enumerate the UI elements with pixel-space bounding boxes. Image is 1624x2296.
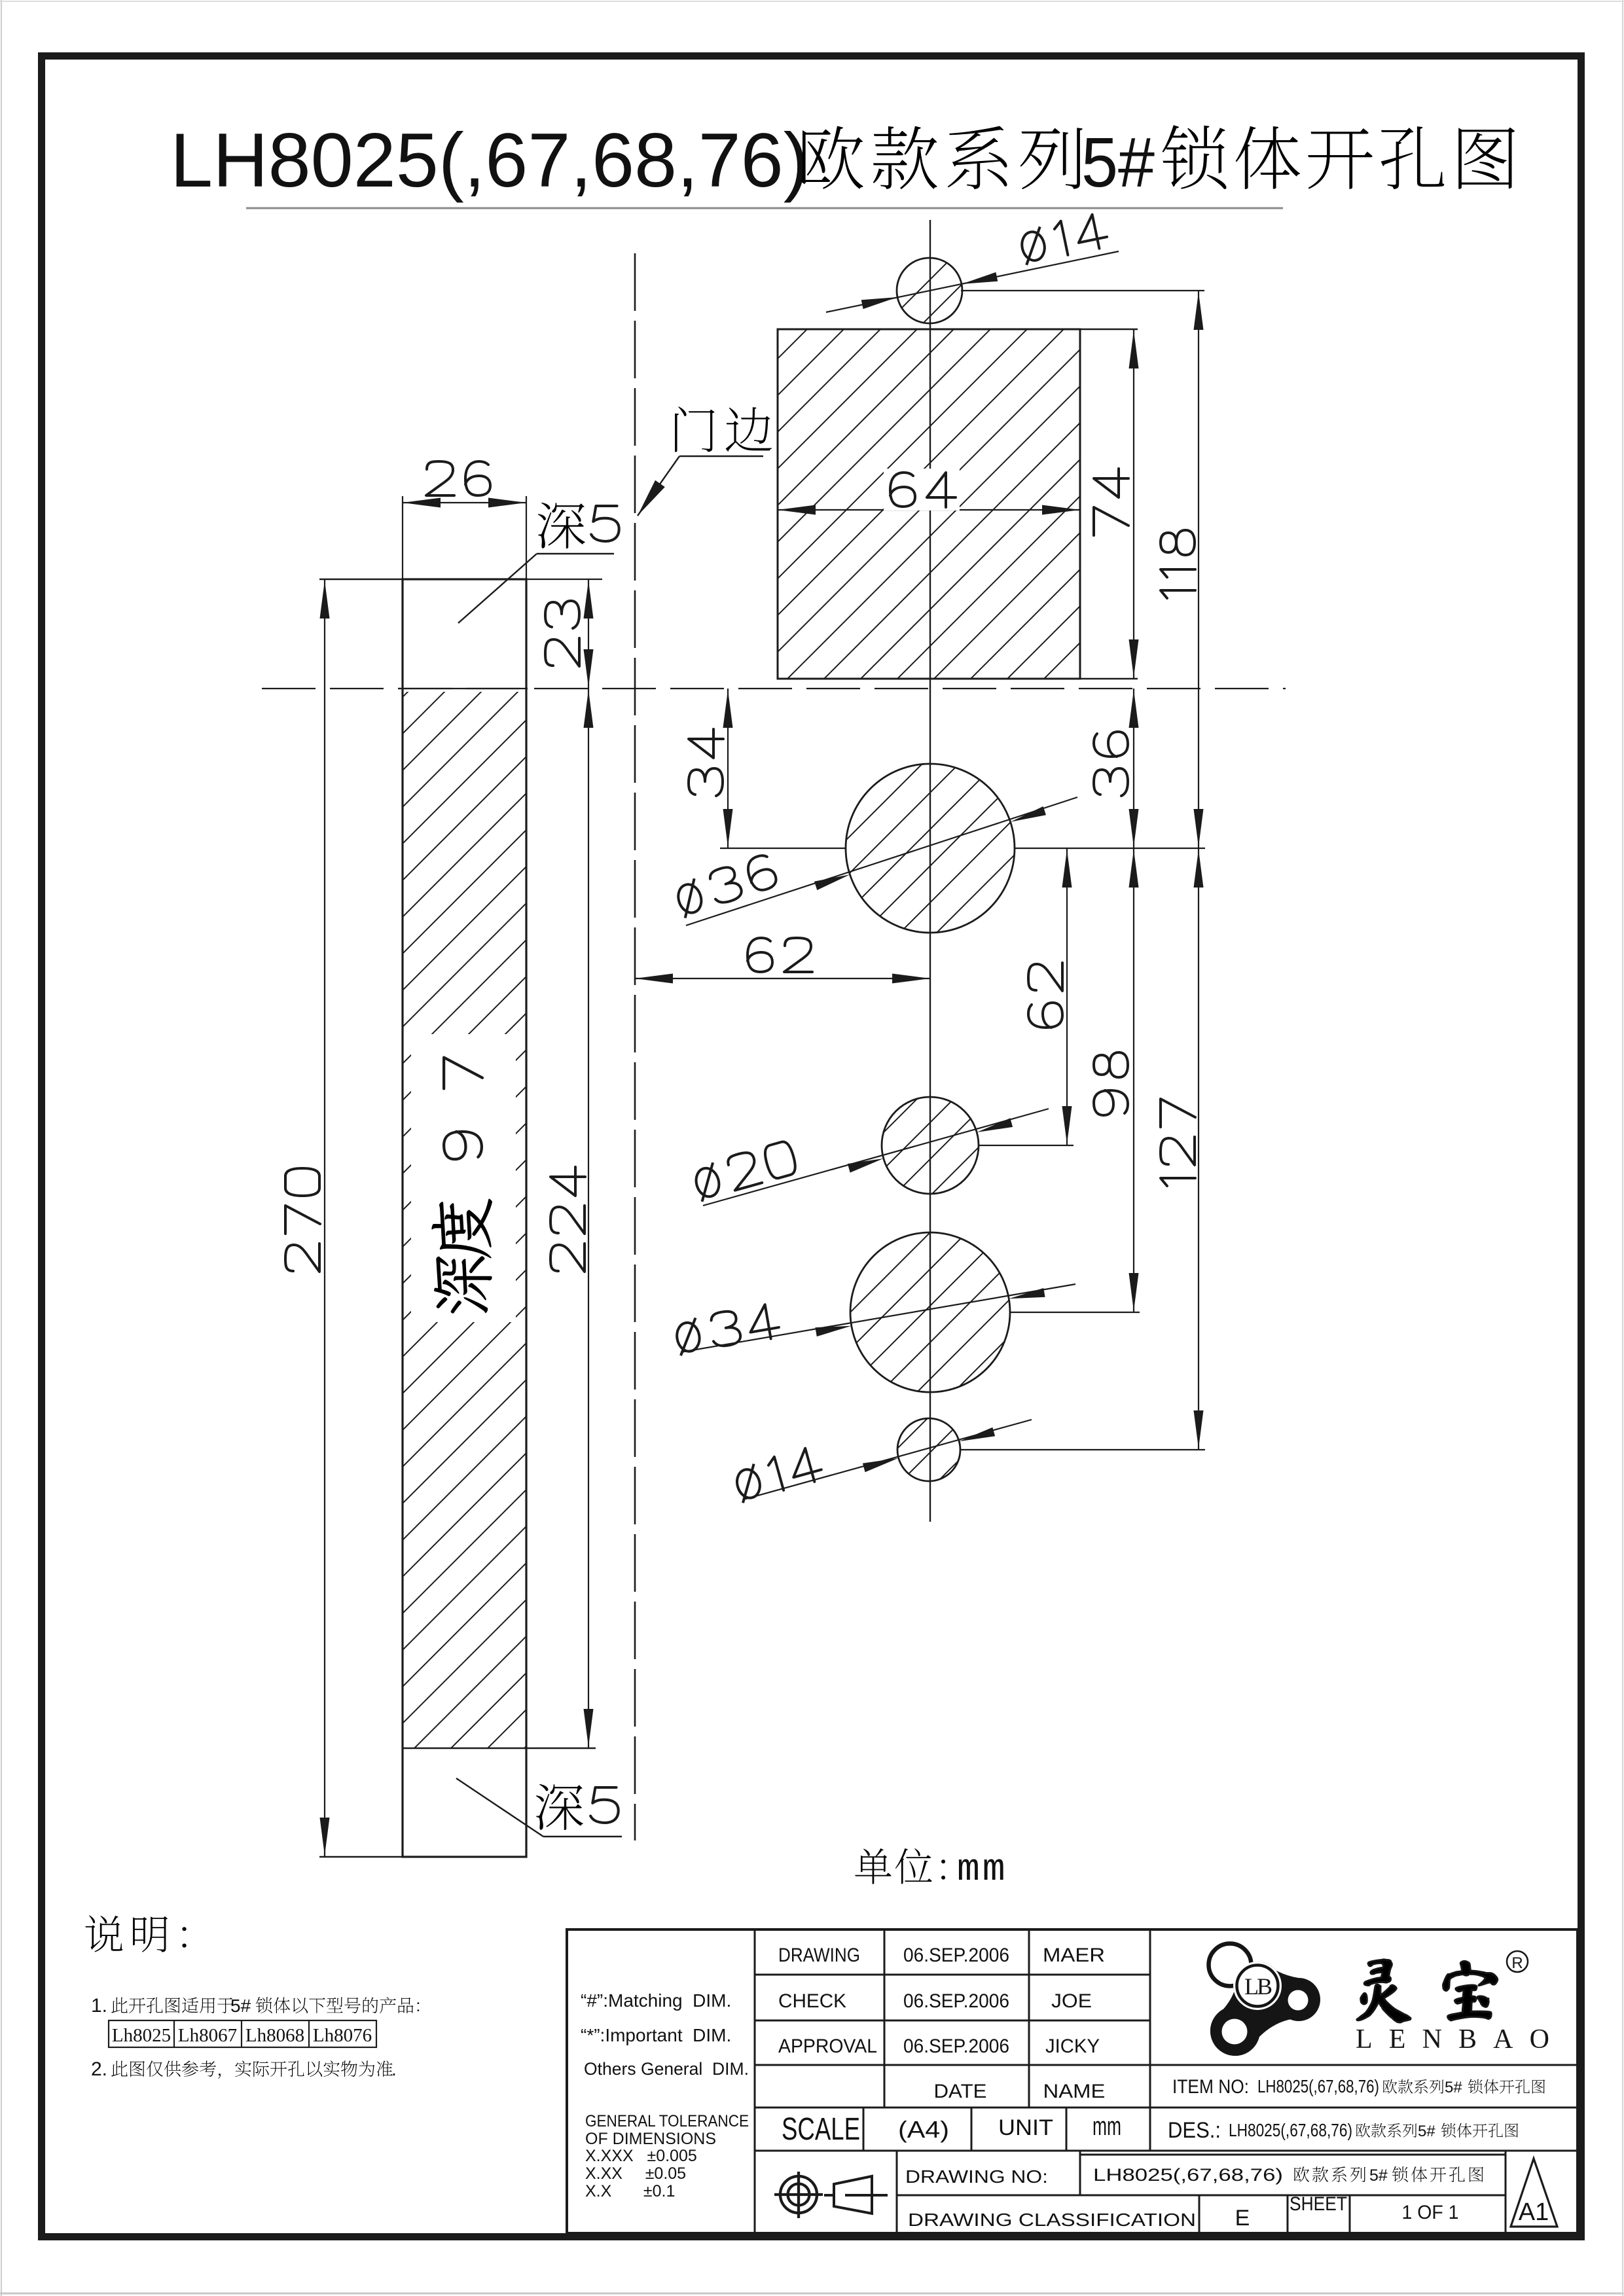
svg-text:SCALE: SCALE <box>782 2112 860 2147</box>
svg-text:Lh8076: Lh8076 <box>313 2025 372 2046</box>
svg-text:5#: 5# <box>1081 122 1155 202</box>
svg-text:A1: A1 <box>1519 2198 1549 2226</box>
svg-text:5#: 5# <box>1445 2079 1462 2096</box>
svg-text:1 OF 1: 1 OF 1 <box>1402 2202 1459 2223</box>
svg-text:OF DIMENSIONS: OF DIMENSIONS <box>585 2130 716 2148</box>
svg-text:DES.:: DES.: <box>1168 2118 1221 2143</box>
svg-text:mm: mm <box>1092 2112 1121 2141</box>
svg-text:Others General DIM.: Others General DIM. <box>584 2059 749 2079</box>
svg-text:DATE: DATE <box>934 2081 987 2102</box>
svg-text:ITEM NO:: ITEM NO: <box>1172 2076 1249 2098</box>
svg-text:5#: 5# <box>230 1996 251 2016</box>
svg-text:CHECK: CHECK <box>778 1990 846 2012</box>
svg-text:06.SEP.2006: 06.SEP.2006 <box>903 1990 1009 2012</box>
svg-text:MAER: MAER <box>1043 1945 1105 1966</box>
svg-text:DRAWING: DRAWING <box>778 1945 860 1966</box>
svg-text:LH8025(,67,68,76): LH8025(,67,68,76) <box>1257 2076 1379 2096</box>
svg-text:1.: 1. <box>91 1995 107 2017</box>
svg-text:“*”:Important DIM.: “*”:Important DIM. <box>581 2025 731 2045</box>
svg-text:“#”:Matching DIM.: “#”:Matching DIM. <box>581 1990 731 2011</box>
svg-text:LH8025(,67,68,76): LH8025(,67,68,76) <box>1229 2120 1352 2140</box>
svg-text:Lh8067: Lh8067 <box>178 2025 237 2046</box>
svg-text:NAME: NAME <box>1043 2081 1106 2102</box>
svg-text:GENERAL TOLERANCE: GENERAL TOLERANCE <box>585 2112 749 2130</box>
svg-text:SHEET: SHEET <box>1290 2193 1347 2215</box>
svg-text:UNIT: UNIT <box>998 2115 1053 2140</box>
svg-text:(A4): (A4) <box>898 2116 949 2143</box>
svg-text:DRAWING CLASSIFICATION: DRAWING CLASSIFICATION <box>908 2210 1196 2230</box>
svg-text:5#: 5# <box>1369 2166 1388 2185</box>
svg-text:JOE: JOE <box>1051 1990 1092 2012</box>
svg-text:DRAWING NO:: DRAWING NO: <box>905 2166 1048 2187</box>
svg-text:APPROVAL: APPROVAL <box>778 2036 877 2057</box>
svg-text:06.SEP.2006: 06.SEP.2006 <box>903 2036 1009 2057</box>
svg-text:LH8025(,67,68,76): LH8025(,67,68,76) <box>170 117 809 203</box>
svg-text:.: . <box>391 2059 397 2079</box>
svg-text:LB: LB <box>1244 1973 1272 2000</box>
svg-text:2.: 2. <box>91 2058 107 2080</box>
svg-text:X.XXX ±0.005: X.XXX ±0.005 <box>585 2147 697 2165</box>
svg-text:5#: 5# <box>1418 2123 1435 2140</box>
svg-text:E: E <box>1235 2206 1250 2231</box>
svg-text:X.XX ±0.05: X.XX ±0.05 <box>585 2164 686 2183</box>
svg-text:06.SEP.2006: 06.SEP.2006 <box>903 1945 1009 1966</box>
svg-text:LH8025(,67,68,76): LH8025(,67,68,76) <box>1093 2165 1283 2185</box>
svg-text:R: R <box>1511 1954 1523 1972</box>
svg-text:X.X ±0.1: X.X ±0.1 <box>585 2182 675 2200</box>
svg-text:Lh8068: Lh8068 <box>245 2025 304 2046</box>
svg-text:JICKY: JICKY <box>1045 2036 1100 2057</box>
svg-text:mm: mm <box>957 1849 1008 1892</box>
svg-text:Lh8025: Lh8025 <box>112 2025 171 2046</box>
